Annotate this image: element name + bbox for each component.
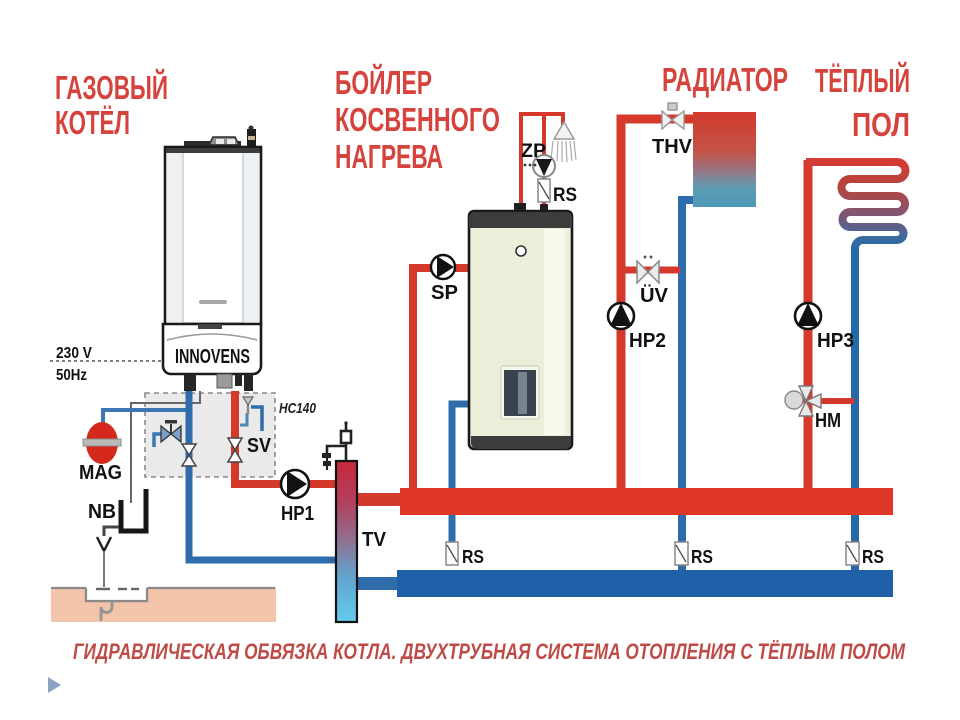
svg-text:HC140: HC140 [279,400,317,417]
svg-text:РАДИАТОР: РАДИАТОР [662,61,788,98]
svg-text:NB: NB [88,501,116,523]
svg-text:ТЁПЛЫЙ: ТЁПЛЫЙ [815,61,910,99]
svg-text:КОСВЕННОГО: КОСВЕННОГО [335,101,500,138]
svg-text:HP2: HP2 [629,330,666,352]
svg-text:50Hz: 50Hz [56,367,87,384]
svg-text:НАГРЕВА: НАГРЕВА [335,138,443,175]
svg-text:MAG: MAG [79,462,122,484]
svg-text:ГАЗОВЫЙ: ГАЗОВЫЙ [55,68,168,106]
svg-text:RS: RS [553,185,577,206]
svg-text:HM: HM [815,410,841,432]
svg-text:HP1: HP1 [281,503,314,525]
svg-text:HP3: HP3 [817,330,854,352]
svg-text:ПОЛ: ПОЛ [852,106,910,143]
svg-text:SV: SV [247,435,272,457]
svg-text:SP: SP [431,282,458,304]
svg-text:230 V: 230 V [56,345,92,362]
svg-text:THV: THV [652,136,693,158]
svg-text:ГИДРАВЛИЧЕСКАЯ ОБВЯЗКА КОТЛА.: ГИДРАВЛИЧЕСКАЯ ОБВЯЗКА КОТЛА. ДВУХТРУБНА… [73,639,906,664]
svg-text:RS: RS [462,547,484,567]
svg-text:ÜV: ÜV [640,284,669,307]
svg-text:RS: RS [691,547,713,567]
svg-text:ZP: ZP [521,141,546,162]
svg-text:БОЙЛЕР: БОЙЛЕР [335,63,432,101]
svg-text:RS: RS [862,547,884,567]
svg-text:КОТЁЛ: КОТЁЛ [55,104,130,141]
svg-text:TV: TV [362,529,387,551]
svg-text:INNOVENS: INNOVENS [175,346,250,368]
